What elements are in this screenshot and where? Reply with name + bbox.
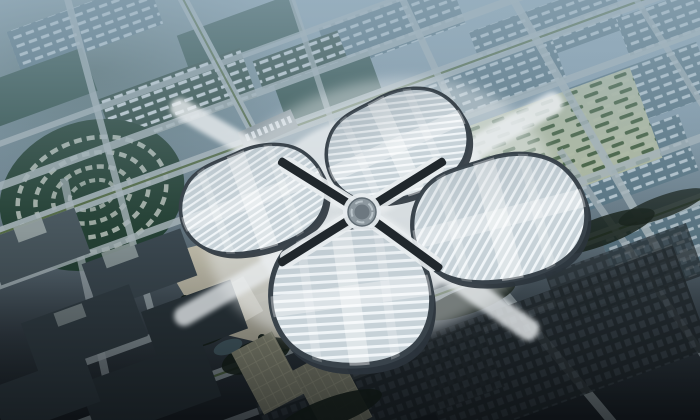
aerial-rendering	[0, 0, 700, 420]
aerial-rendering-canvas	[0, 0, 700, 420]
hub-core	[355, 205, 370, 220]
central-hub	[343, 193, 381, 231]
